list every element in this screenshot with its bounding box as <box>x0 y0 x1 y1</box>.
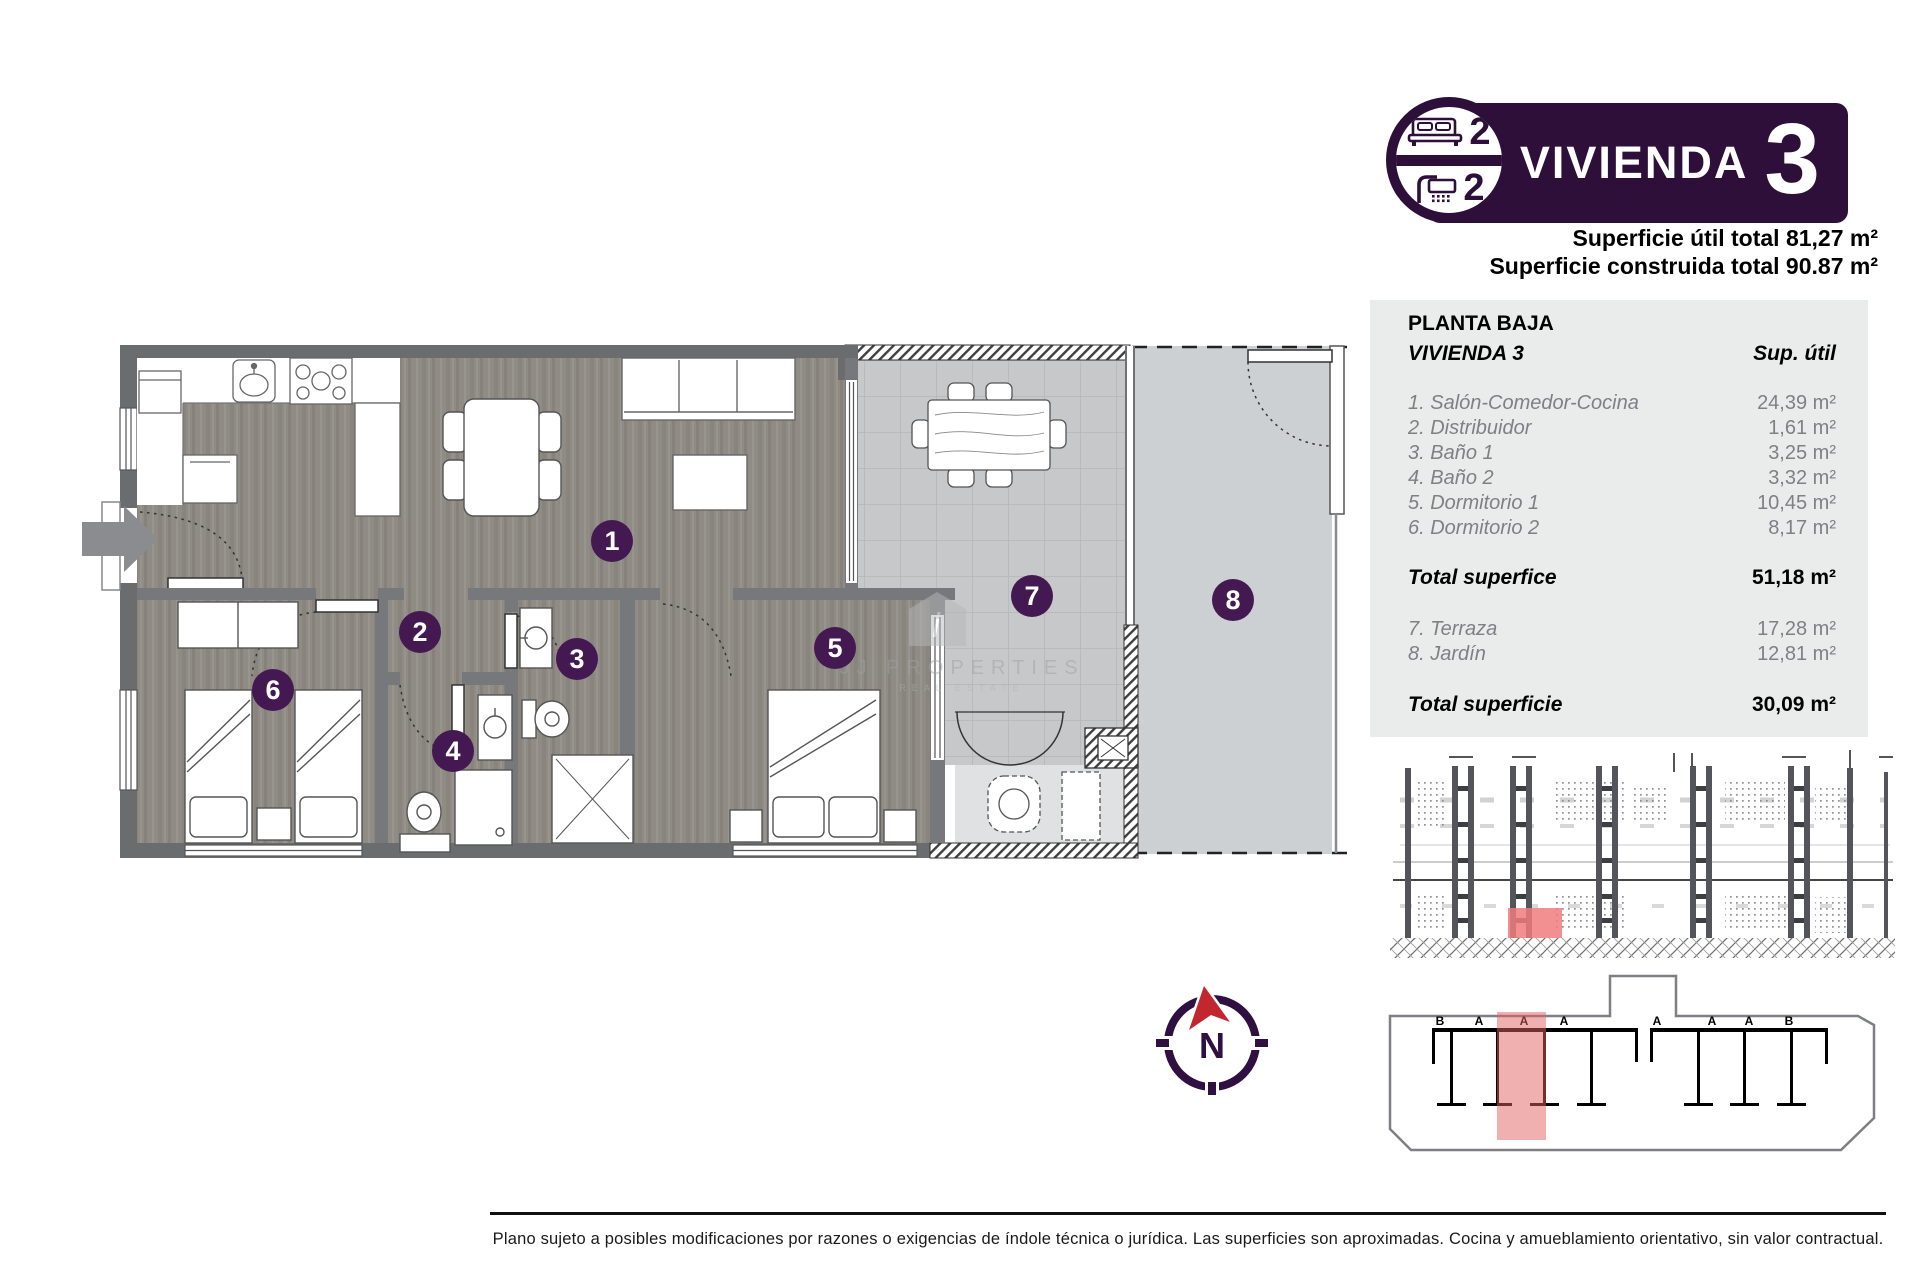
coffee-table <box>673 455 747 510</box>
watermark-line2: REAL ESTATE <box>899 683 1024 693</box>
svg-text:2: 2 <box>412 617 427 647</box>
compass-north-label: N <box>1199 1025 1225 1066</box>
room-badge-6: 6 <box>252 669 294 711</box>
svg-text:A: A <box>1708 1014 1717 1028</box>
svg-text:4: 4 <box>445 736 460 766</box>
unit-highlight-siteplan <box>1497 1012 1546 1140</box>
unit-highlight-elevation <box>1508 908 1562 938</box>
watermark-line1: JJ PROPERTIES <box>839 657 1084 679</box>
svg-text:8: 8 <box>1225 585 1240 615</box>
svg-text:7: 7 <box>1024 581 1039 611</box>
single-bed <box>295 690 362 843</box>
built-area-total: Superficie construida total 90.87 m² <box>1380 252 1878 280</box>
svg-text:A: A <box>1560 1014 1569 1028</box>
building-elevation <box>1390 750 1895 958</box>
svg-text:A: A <box>1653 1014 1662 1028</box>
table-row: 1. Salón-Comedor-Cocina24,39 m² <box>1408 392 1836 415</box>
svg-text:1: 1 <box>604 526 619 556</box>
unit-title: VIVIENDA <box>1520 137 1749 189</box>
unit-number: 3 <box>1764 109 1820 209</box>
total-outdoor-row: Total superficie30,09 m² <box>1408 693 1836 717</box>
table-row: 2. Distribuidor1,61 m² <box>1408 417 1836 440</box>
ground-hatch <box>1390 938 1895 958</box>
svg-text:6: 6 <box>265 675 280 705</box>
table-row: 3. Baño 13,25 m² <box>1408 442 1836 465</box>
nightstand <box>730 810 762 842</box>
washing-machine <box>1062 772 1100 840</box>
utility-bottom-wall <box>930 843 1138 858</box>
table-row: 4. Baño 23,32 m² <box>1408 467 1836 490</box>
kitchen-sink <box>233 360 275 402</box>
room-badge-5: 5 <box>814 627 856 669</box>
disclaimer: Plano sujeto a posibles modificaciones p… <box>490 1230 1886 1249</box>
svg-text:3: 3 <box>569 644 584 674</box>
room-badge-4: 4 <box>432 730 474 772</box>
floor-plan: i JJ PROPERTIES REAL ESTATE 1 2 3 <box>82 345 1348 858</box>
table-row: 7. Terraza17,28 m² <box>1408 618 1836 641</box>
single-bed <box>185 690 252 843</box>
svg-text:A: A <box>1475 1014 1484 1028</box>
double-bed <box>768 690 880 843</box>
table-row: 5. Dormitorio 110,45 m² <box>1408 492 1836 515</box>
room-badge-8: 8 <box>1212 579 1254 621</box>
nightstand <box>884 810 916 842</box>
sofa <box>622 358 795 420</box>
areas-table: PLANTA BAJA VIVIENDA 3 Sup. útil 1. Saló… <box>1370 300 1868 737</box>
svg-text:A: A <box>1745 1014 1754 1028</box>
toilet <box>522 700 569 738</box>
total-areas: Superficie útil total 81,27 m² Superfici… <box>1380 224 1878 280</box>
shower <box>552 755 633 843</box>
site-plan: B A A A A A A B <box>1390 976 1874 1150</box>
terrace-top-wall <box>845 345 1130 360</box>
compass: N <box>1156 986 1268 1095</box>
floor-label: PLANTA BAJA <box>1408 312 1554 336</box>
total-interior-row: Total superfice51,18 m² <box>1408 566 1836 590</box>
column-header: Sup. útil <box>1753 342 1836 366</box>
stove <box>290 358 352 404</box>
svg-text:B: B <box>1785 1014 1794 1028</box>
svg-text:5: 5 <box>827 633 842 663</box>
garden-door-leaf <box>1248 350 1332 362</box>
bed-icon <box>1407 117 1463 147</box>
room-badge-1: 1 <box>591 520 633 562</box>
table-row: 6. Dormitorio 28,17 m² <box>1408 517 1836 540</box>
bedroom-count: 2 <box>1469 113 1490 151</box>
room-badge-3: 3 <box>556 638 598 680</box>
footer-rule <box>490 1212 1886 1215</box>
unit-label: VIVIENDA 3 <box>1408 342 1524 366</box>
bathroom-count: 2 <box>1463 169 1484 207</box>
room-badge-2: 2 <box>399 611 441 653</box>
table-row: 8. Jardín12,81 m² <box>1408 643 1836 666</box>
nightstand <box>257 808 291 840</box>
floorplan-sheet: i JJ PROPERTIES REAL ESTATE 1 2 3 <box>0 0 1920 1280</box>
room-badge-7: 7 <box>1011 575 1053 617</box>
svg-text:B: B <box>1436 1014 1445 1028</box>
bed-bath-badge: 2 2 <box>1386 97 1512 223</box>
shower-icon <box>1413 171 1457 205</box>
compass-north-arrow-icon <box>1189 986 1230 1030</box>
useful-area-total: Superficie útil total 81,27 m² <box>1380 224 1878 252</box>
